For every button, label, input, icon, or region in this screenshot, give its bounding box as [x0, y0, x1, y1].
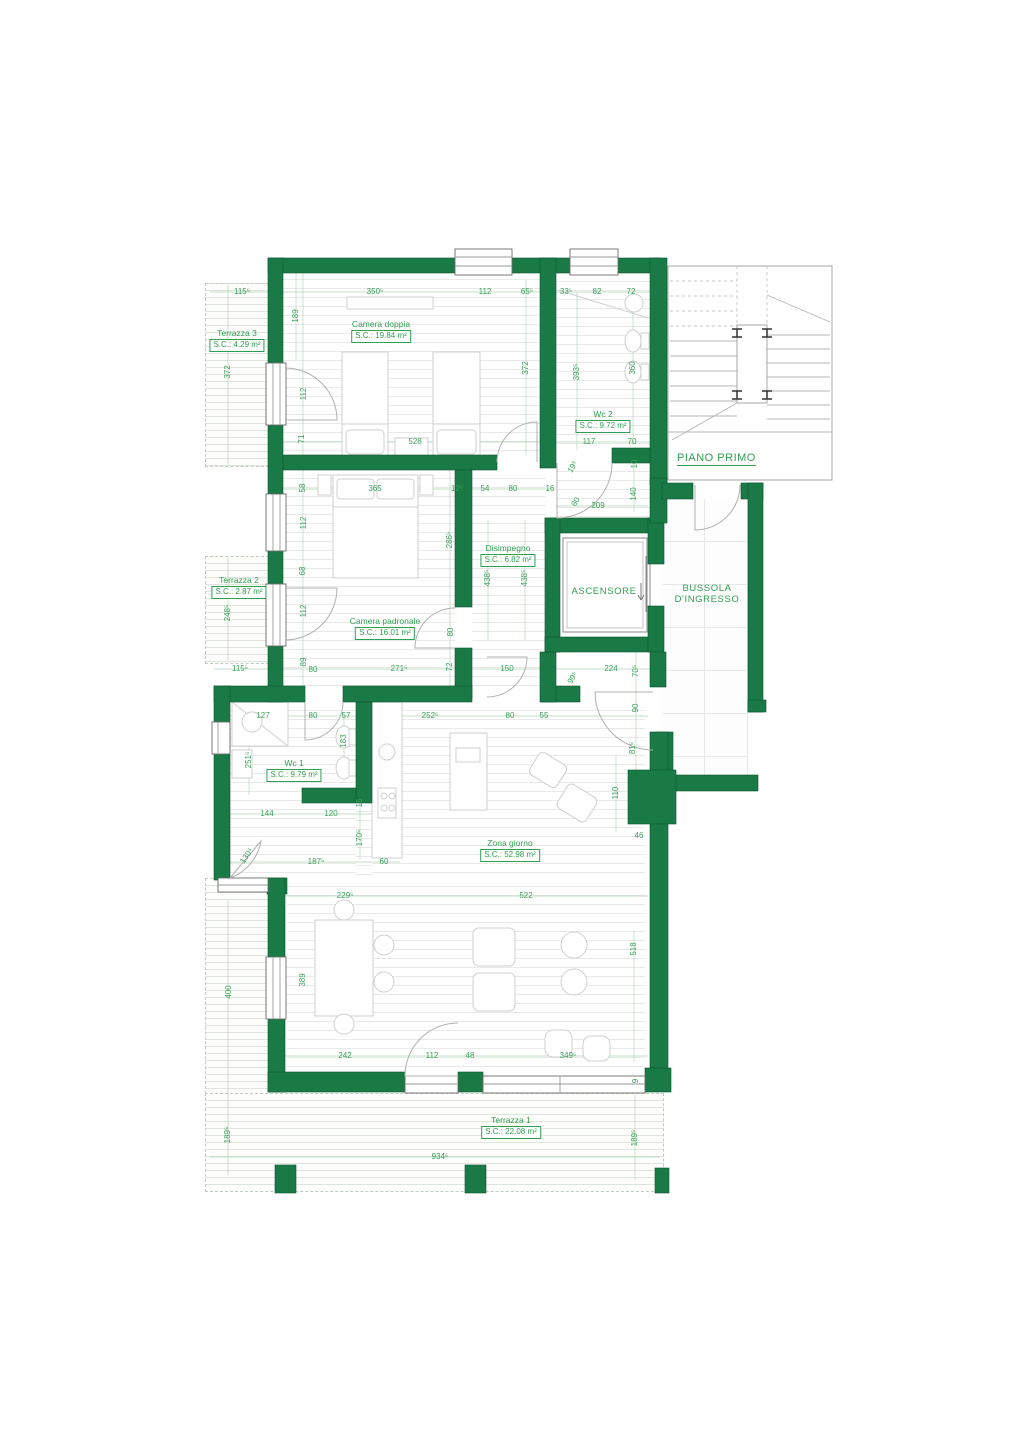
dimension-label: 9 [632, 1079, 640, 1083]
dimension-label: 55 [540, 712, 549, 720]
dimension-label: 58 [299, 484, 307, 493]
dimension-label: 68 [299, 567, 307, 576]
room-area-badge: S.C.: 4.29 m² [209, 339, 264, 352]
room-label: Wc 2S.C.: 9.72 m² [575, 409, 630, 433]
room-area-badge: S.C.: 6.82 m² [480, 554, 535, 567]
dimension-label: 934⁵ [432, 1153, 449, 1161]
room-name: Terrazza 1 [481, 1115, 541, 1125]
room-area-badge: S.C.: 2.87 m² [211, 586, 266, 599]
dimension-label: 248⁵ [224, 605, 232, 622]
dimension-label: 81⁵ [629, 742, 637, 754]
room-name: Camera doppia [351, 319, 411, 329]
room-label: Camera padronaleS.C.: 16.01 m² [350, 616, 420, 640]
dimension-label: 350⁵ [367, 288, 384, 296]
dimension-label: 57 [342, 712, 351, 720]
dimension-label: 522 [519, 892, 532, 900]
room-name: Wc 1 [266, 758, 321, 768]
dimension-label: 80 [506, 712, 515, 720]
dimension-label: 372 [522, 361, 530, 374]
dimension-label: 112 [300, 605, 308, 618]
dimension-label: 80 [447, 628, 455, 637]
dimension-label: 251⁵ [245, 752, 253, 769]
dimension-label: 71 [298, 435, 306, 444]
dimension-label: 10 [631, 460, 639, 469]
room-name: Camera padronale [350, 616, 420, 626]
dimension-label: 12⁵ [451, 485, 463, 493]
room-name: Zona giorno [480, 838, 540, 848]
room-area-badge: S.C.: 9.72 m² [575, 420, 630, 433]
dimension-label: 189⁵ [224, 1127, 232, 1144]
dimension-label: 372 [224, 365, 232, 378]
dimension-label: 528 [408, 438, 421, 446]
room-name: Wc 2 [575, 409, 630, 419]
room-area-badge: S.C.: 52.98 m² [480, 849, 540, 862]
label-layer: ASCENSORE BUSSOLA D'INGRESSO PIANO PRIMO… [0, 0, 1018, 1440]
dimension-label: 117 [583, 438, 596, 446]
dimension-label: 112 [300, 388, 308, 401]
dimension-label: 89 [300, 658, 308, 667]
dimension-label: 400 [225, 985, 233, 998]
dimension-label: 150 [500, 665, 513, 673]
dimension-label: 90 [632, 704, 640, 713]
dimension-label: 72 [627, 288, 636, 296]
dimension-label: 518 [630, 942, 638, 955]
dimension-label: 209 [591, 502, 604, 510]
dimension-label: 82 [593, 288, 602, 296]
room-name: Terrazza 3 [209, 328, 264, 338]
dimension-label: 115⁵ [232, 665, 248, 673]
dimension-label: 189 [292, 309, 300, 322]
dimension-label: 112 [426, 1052, 439, 1060]
dimension-label: 60 [380, 858, 389, 866]
dimension-label: 120 [324, 810, 337, 818]
dimension-label: 80 [309, 712, 318, 720]
dimension-label: 70 [628, 438, 637, 446]
dimension-label: 99⁵ [566, 671, 579, 686]
dimension-label: 70⁵ [632, 665, 640, 677]
dimension-label: 110 [612, 787, 620, 800]
dimension-label: 242 [338, 1052, 351, 1060]
room-name: Disimpegno [480, 543, 535, 553]
dimension-label: 127 [256, 712, 269, 720]
piano-primo-label: PIANO PRIMO [677, 452, 756, 466]
room-area-badge: S.C.: 9.79 m² [266, 769, 321, 782]
dimension-label: 144 [260, 810, 273, 818]
dimension-label: 19⁵ [566, 460, 579, 475]
dimension-label: 80 [509, 485, 518, 493]
dimension-label: 365 [368, 485, 381, 493]
dimension-label: 48 [466, 1052, 475, 1060]
dimension-label: 46 [635, 832, 644, 840]
room-area-badge: S.C.: 22.08 m² [481, 1126, 541, 1139]
dimension-label: 360 [629, 361, 637, 374]
room-area-badge: S.C.: 19.84 m² [351, 330, 411, 343]
ascensore-label: ASCENSORE [571, 586, 636, 597]
dimension-label: 224 [604, 665, 617, 673]
room-label: Wc 1S.C.: 9.79 m² [266, 758, 321, 782]
dimension-label: 170⁵ [356, 830, 364, 847]
dimension-label: 115⁵ [234, 288, 250, 296]
dimension-label: 65⁵ [521, 288, 533, 296]
dimension-label: 112 [479, 288, 492, 296]
dimension-label: 286⁵ [446, 532, 454, 549]
room-area-badge: S.C.: 16.01 m² [355, 627, 415, 640]
dimension-label: 72 [446, 663, 454, 672]
dimension-label: 271⁵ [391, 665, 408, 673]
room-label: DisimpegnoS.C.: 6.82 m² [480, 543, 535, 567]
dimension-label: 189⁵ [631, 1130, 639, 1147]
dimension-label: 140 [630, 487, 638, 500]
dimension-label: 438⁵ [521, 570, 529, 587]
dimension-label: 438⁵ [484, 570, 492, 587]
dimension-label: 80 [570, 496, 581, 508]
dimension-label: 229⁵ [337, 892, 354, 900]
dimension-label: 393⁵ [573, 364, 581, 381]
dimension-label: 33⁵ [560, 288, 572, 296]
dimension-label: 389 [299, 973, 307, 986]
bussola-ingresso-label: BUSSOLA D'INGRESSO [675, 583, 740, 606]
dimension-label: 252⁵ [422, 712, 439, 720]
room-label: Terrazza 2S.C.: 2.87 m² [211, 575, 266, 599]
floor-plan-page: ASCENSORE BUSSOLA D'INGRESSO PIANO PRIMO… [0, 0, 1018, 1440]
room-label: Terrazza 3S.C.: 4.29 m² [209, 328, 264, 352]
dimension-label: 130⁵ [239, 847, 255, 865]
dimension-label: 80 [309, 666, 318, 674]
dimension-label: 54 [481, 485, 490, 493]
dimension-label: 349⁵ [560, 1052, 577, 1060]
dimension-label: 183 [340, 734, 348, 747]
dimension-label: 15 [356, 799, 364, 808]
dimension-label: 112 [300, 517, 308, 530]
room-label: Zona giornoS.C.: 52.98 m² [480, 838, 540, 862]
dimension-label: 16 [546, 485, 555, 493]
dimension-label: 187⁵ [308, 858, 325, 866]
room-label: Terrazza 1S.C.: 22.08 m² [481, 1115, 541, 1139]
room-label: Camera doppiaS.C.: 19.84 m² [351, 319, 411, 343]
room-name: Terrazza 2 [211, 575, 266, 585]
